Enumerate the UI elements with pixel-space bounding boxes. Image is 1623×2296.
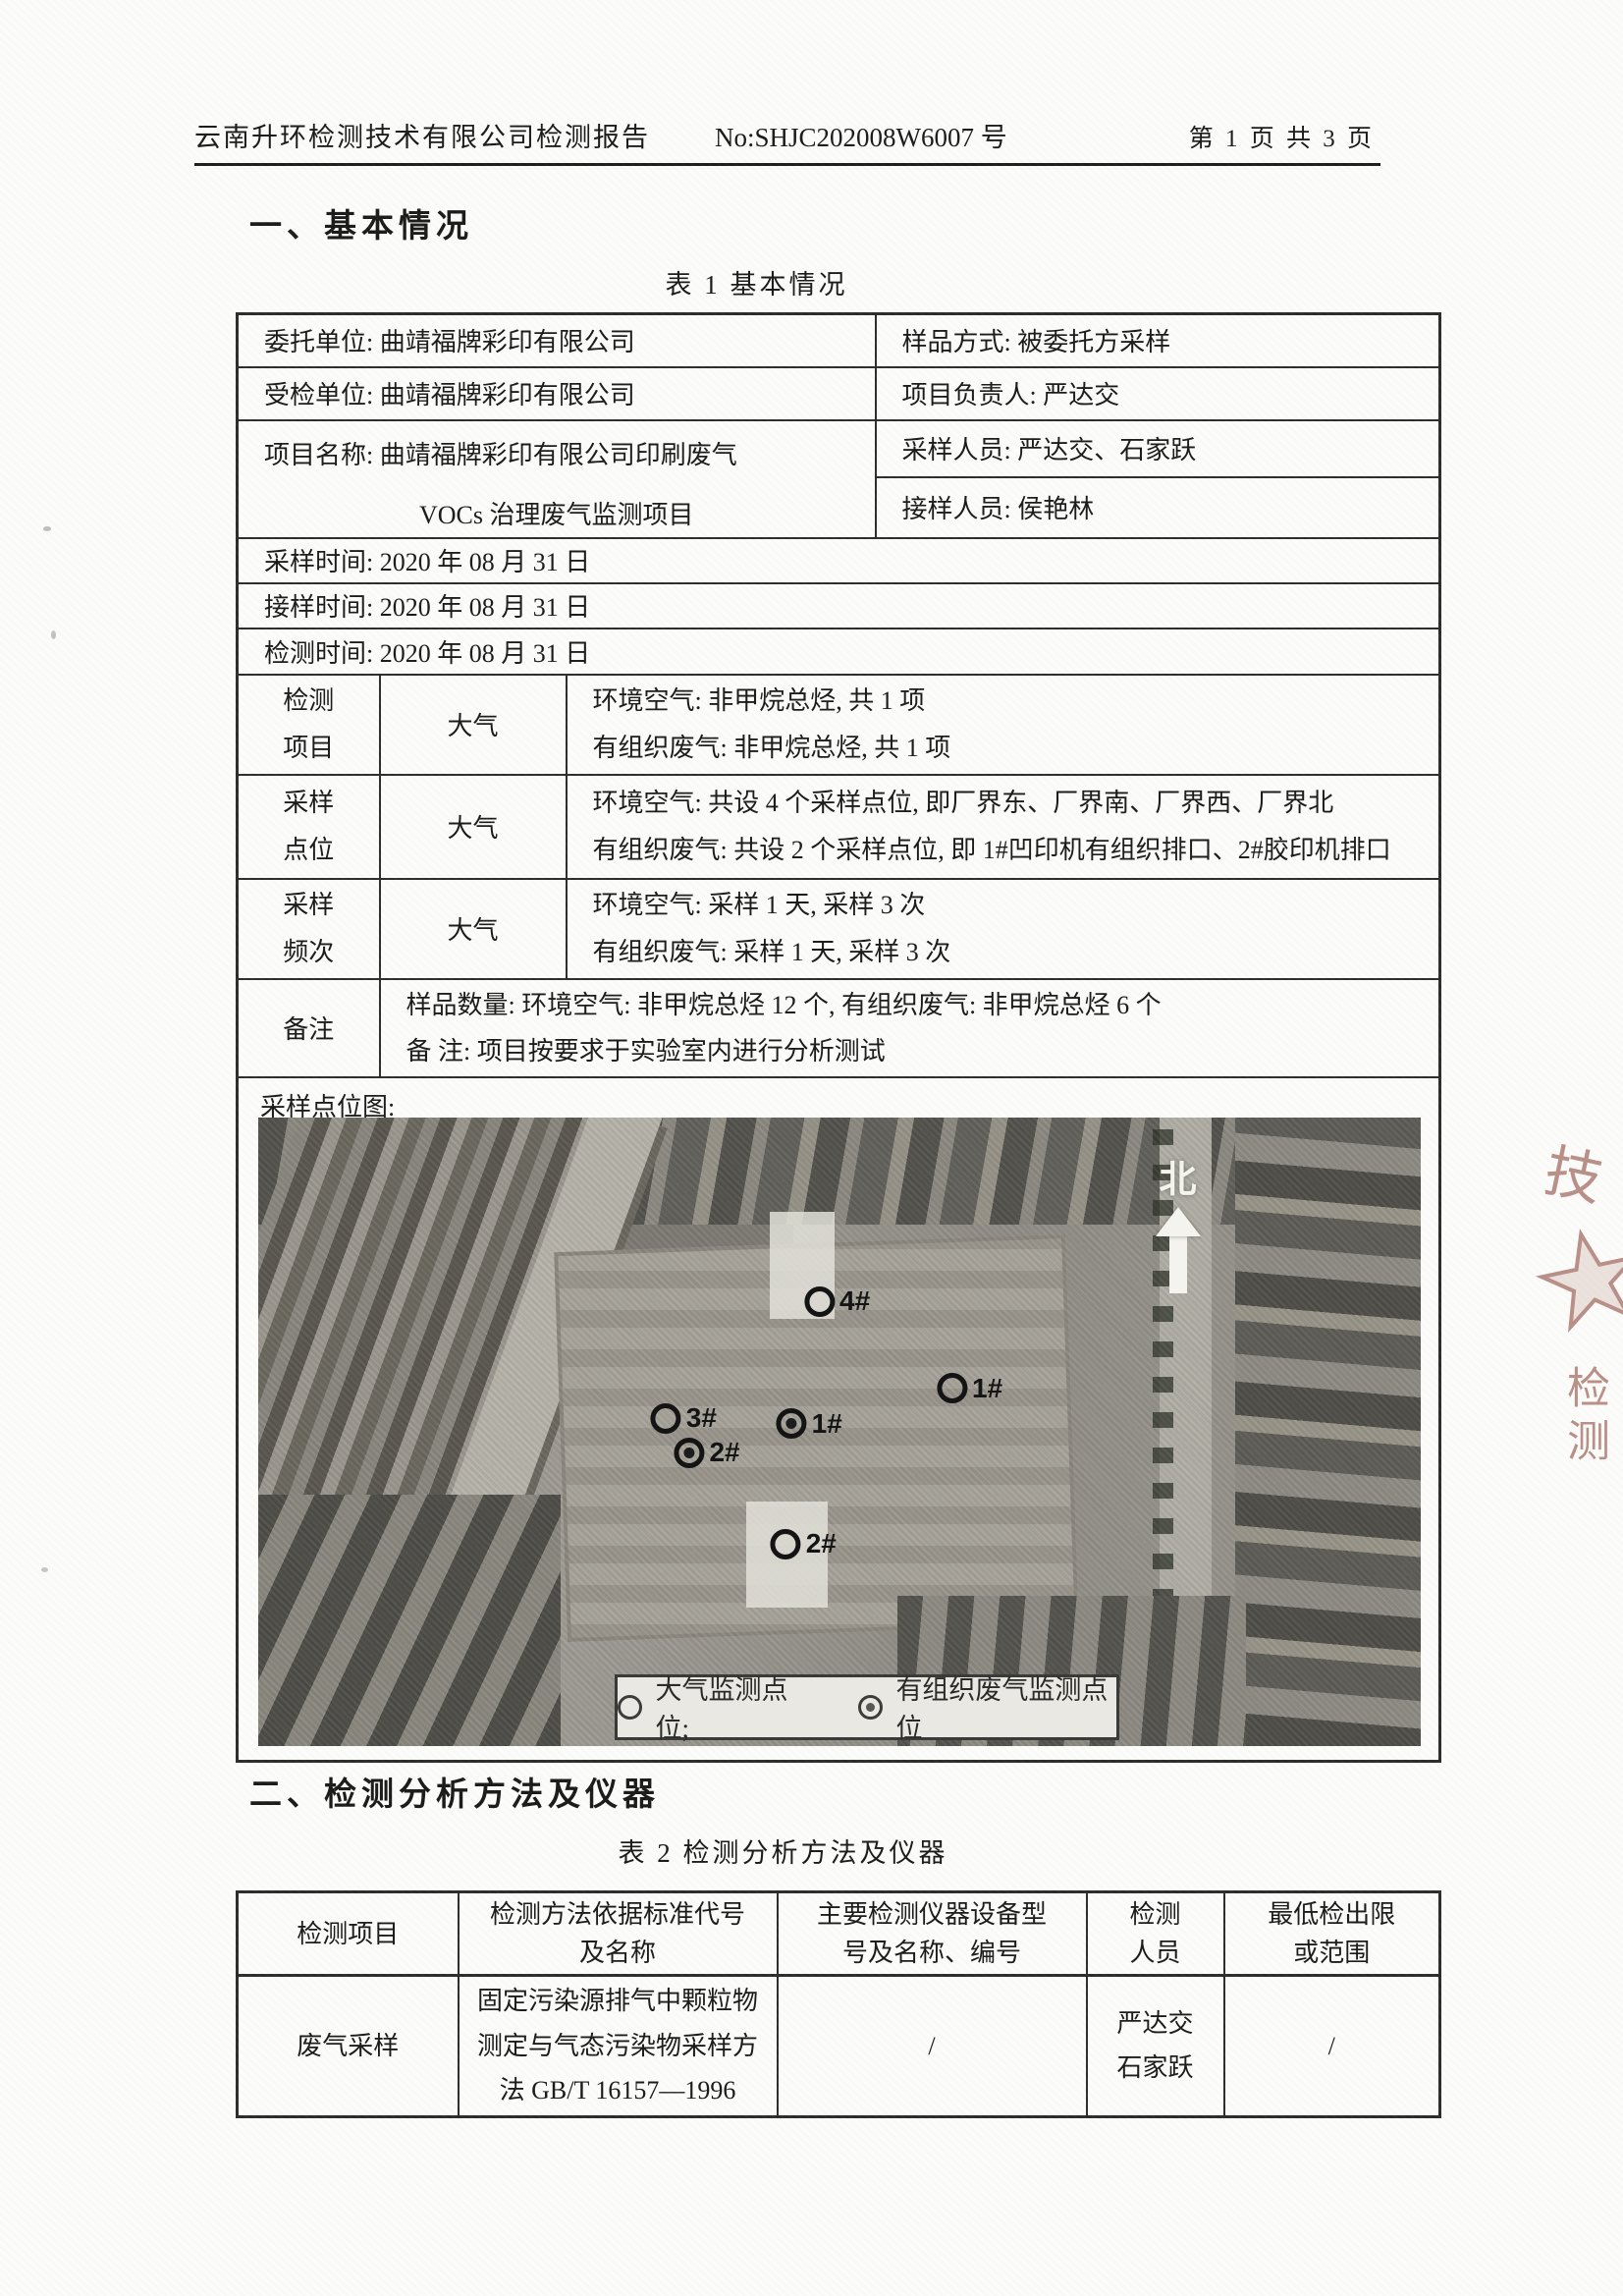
- air-monitoring-point: 2#: [771, 1528, 837, 1559]
- sampling-frequency-medium: 大气: [380, 879, 567, 979]
- project-name-cell: 项目名称: 曲靖福牌彩印有限公司印刷废气 VOCs 治理废气监测项目: [238, 420, 876, 538]
- sampling-points-label: 采样 点位: [238, 775, 380, 879]
- t2-row-limit: /: [1224, 1976, 1440, 2117]
- remark-label: 备注: [238, 979, 380, 1078]
- t2-row-method: 固定污染源排气中颗粒物 测定与气态污染物采样方 法 GB/T 16157—199…: [459, 1976, 778, 2117]
- air-point-icon: [651, 1403, 681, 1434]
- section1-title: 一、基本情况: [249, 199, 473, 246]
- sample-receiver-cell: 接样人员: 侯艳林: [876, 477, 1440, 538]
- table1-caption: 表 1 基本情况: [155, 263, 1358, 301]
- samplers-cell: 采样人员: 严达交、石家跃: [876, 420, 1440, 477]
- map-label: 采样点位图:: [239, 1078, 1438, 1118]
- methods-instruments-table: 检测项目 检测方法依据标准代号 及名称 主要检测仪器设备型 号及名称、编号 检测…: [236, 1890, 1441, 2118]
- t2-header-item: 检测项目: [238, 1892, 459, 1976]
- company-report-title: 云南升环检测技术有限公司检测报告: [194, 116, 650, 154]
- scan-speck: [41, 1567, 48, 1572]
- sampling-frequency-content: 环境空气: 采样 1 天, 采样 3 次 有组织废气: 采样 1 天, 采样 3…: [567, 879, 1440, 979]
- sampling-time-cell: 采样时间: 2020 年 08 月 31 日: [238, 538, 1440, 583]
- air-monitoring-point: 4#: [804, 1285, 870, 1317]
- partial-seal-stamp: 技 检测: [1531, 1131, 1623, 1495]
- report-page: 云南升环检测技术有限公司检测报告 No:SHJC202008W6007 号 第 …: [0, 0, 1623, 2296]
- t2-header-personnel: 检测 人员: [1087, 1892, 1224, 1976]
- north-label: 北: [1160, 1149, 1197, 1203]
- entrust-unit-cell: 委托单位: 曲靖福牌彩印有限公司: [238, 314, 876, 367]
- section2-title: 二、检测分析方法及仪器: [249, 1768, 660, 1815]
- north-indicator: 北: [1149, 1149, 1207, 1293]
- t2-header-instrument: 主要检测仪器设备型 号及名称、编号: [778, 1892, 1087, 1976]
- air-point-icon: [937, 1373, 967, 1403]
- t2-row-personnel: 严达交 石家跃: [1087, 1976, 1224, 2117]
- scan-speck: [43, 526, 51, 531]
- point-label: 4#: [839, 1285, 870, 1317]
- map-cell: 采样点位图: 4#1#3#2#1#2#: [238, 1077, 1440, 1762]
- page-number: 第 1 页 共 3 页: [1189, 119, 1375, 154]
- point-label: 1#: [812, 1408, 842, 1440]
- inspected-unit-cell: 受检单位: 曲靖福牌彩印有限公司: [238, 367, 876, 420]
- map-legend: 大气监测点位; 有组织废气监测点位: [615, 1674, 1119, 1740]
- table2-caption: 表 2 检测分析方法及仪器: [182, 1831, 1384, 1870]
- page-header: 云南升环检测技术有限公司检测报告 No:SHJC202008W6007 号 第 …: [194, 116, 1380, 166]
- report-number: No:SHJC202008W6007 号: [715, 116, 1007, 154]
- stamp-char-bottom: 检测: [1552, 1365, 1615, 1471]
- test-items-medium: 大气: [380, 675, 567, 775]
- point-label: 2#: [806, 1528, 837, 1559]
- point-label: 1#: [972, 1373, 1002, 1404]
- sample-method-cell: 样品方式: 被委托方采样: [876, 314, 1440, 367]
- basic-info-table: 委托单位: 曲靖福牌彩印有限公司 样品方式: 被委托方采样 受检单位: 曲靖福牌…: [236, 312, 1441, 1763]
- sampling-frequency-label: 采样 频次: [238, 879, 380, 979]
- point-label: 2#: [709, 1437, 739, 1468]
- sampling-points-content: 环境空气: 共设 4 个采样点位, 即厂界东、厂界南、厂界西、厂界北 有组织废气…: [567, 775, 1440, 879]
- air-point-icon: [618, 1695, 642, 1720]
- sampling-points-medium: 大气: [380, 775, 567, 879]
- air-point-icon: [771, 1529, 801, 1559]
- t2-row-instrument: /: [778, 1976, 1087, 2117]
- air-monitoring-point: 1#: [937, 1373, 1002, 1404]
- organized-point-icon: [858, 1695, 883, 1720]
- air-point-icon: [804, 1286, 835, 1317]
- stamp-char-top: 技: [1539, 1131, 1611, 1217]
- receiving-time-cell: 接样时间: 2020 年 08 月 31 日: [238, 583, 1440, 629]
- project-leader-cell: 项目负责人: 严达交: [876, 367, 1440, 420]
- organized-point-icon: [777, 1408, 807, 1439]
- legend-organized-label: 有组织废气监测点位: [895, 1668, 1116, 1745]
- t2-header-limit: 最低检出限 或范围: [1224, 1892, 1440, 1976]
- scan-speck: [51, 630, 56, 639]
- stamp-star-icon: [1531, 1216, 1623, 1343]
- sampling-point-map: 4#1#3#2#1#2# 北 大气监测点位; 有组织废气监测点位: [258, 1118, 1421, 1746]
- testing-time-cell: 检测时间: 2020 年 08 月 31 日: [238, 629, 1440, 675]
- remark-content: 样品数量: 环境空气: 非甲烷总烃 12 个, 有组织废气: 非甲烷总烃 6 个…: [380, 979, 1440, 1078]
- legend-air-label: 大气监测点位;: [655, 1668, 809, 1745]
- north-arrow-icon: [1156, 1207, 1201, 1236]
- test-items-content: 环境空气: 非甲烷总烃, 共 1 项 有组织废气: 非甲烷总烃, 共 1 项: [567, 675, 1440, 775]
- t2-header-method: 检测方法依据标准代号 及名称: [459, 1892, 778, 1976]
- air-monitoring-point: 3#: [651, 1402, 717, 1434]
- project-name-line1: 项目名称: 曲靖福牌彩印有限公司印刷废气: [239, 442, 875, 470]
- organized-point-icon: [674, 1438, 704, 1468]
- organized-monitoring-point: 2#: [674, 1437, 739, 1468]
- t2-row-item: 废气采样: [238, 1976, 459, 2117]
- organized-monitoring-point: 1#: [777, 1408, 842, 1440]
- project-name-line2: VOCs 治理废气监测项目: [239, 495, 875, 531]
- test-items-label: 检测 项目: [238, 675, 380, 775]
- map-markers: 4#1#3#2#1#2#: [258, 1118, 1421, 1746]
- point-label: 3#: [686, 1402, 717, 1434]
